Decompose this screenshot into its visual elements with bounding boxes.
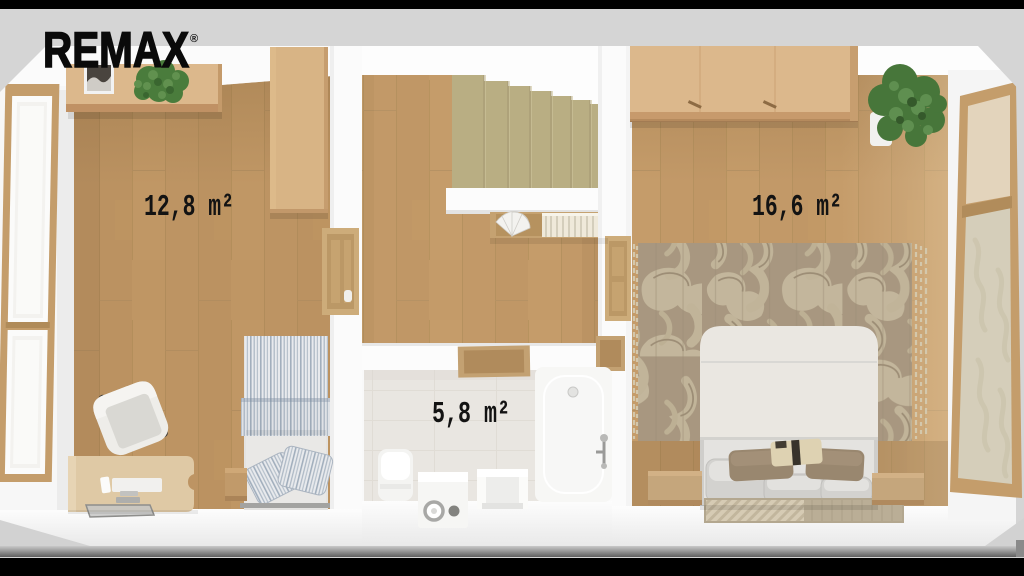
svg-text:5,8 m²: 5,8 m² xyxy=(432,397,510,432)
svg-text:12,8 m²: 12,8 m² xyxy=(144,190,234,225)
svg-text:REMAX: REMAX xyxy=(43,22,189,78)
svg-text:16,6 m²: 16,6 m² xyxy=(752,190,842,225)
svg-text:®: ® xyxy=(190,33,198,45)
